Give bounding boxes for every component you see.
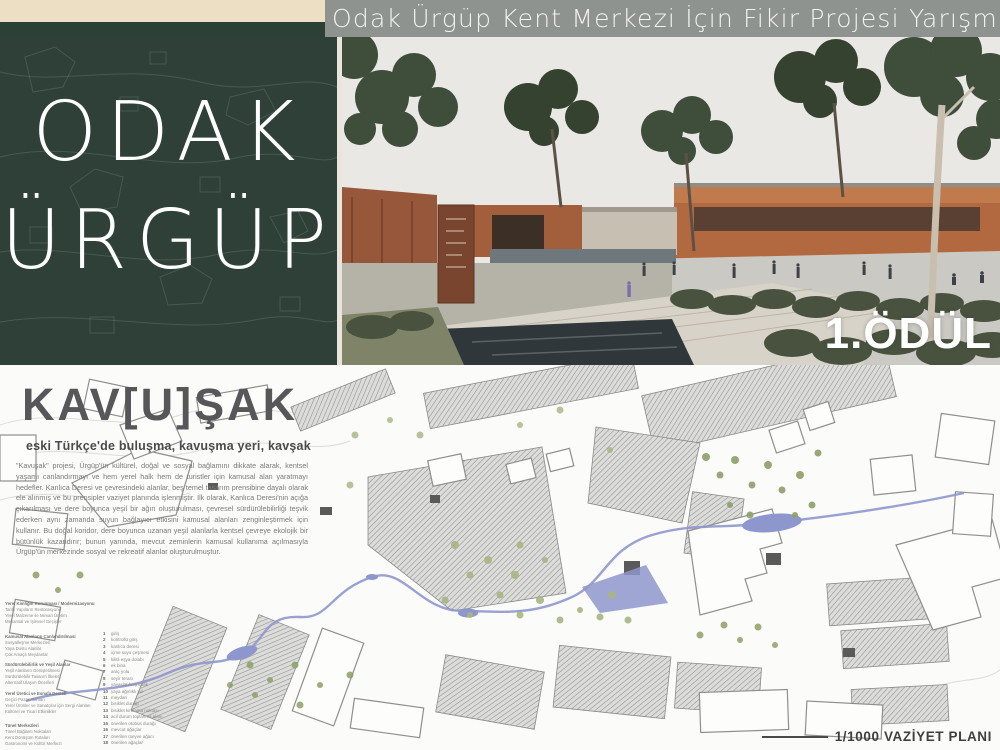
brand-panel-top-strip: [0, 22, 342, 37]
legend-group-identity: Yerel Kimliğin Korunması / Modernizasyon…: [5, 601, 165, 625]
legend-marker: 18: [103, 740, 111, 746]
map-legend: 1giriş 2kontrollü giriş 3kanlıca deresi …: [103, 631, 218, 746]
top-beige-bar: [0, 0, 325, 22]
award-label: 1.ÖDÜL: [825, 309, 992, 359]
project-title: KAV[U]ŞAK: [22, 379, 298, 431]
project-description: "Kavuşak" projesi, Ürgüp'ün kültürel, do…: [16, 461, 308, 558]
map-legend-item: 18önerilen ağaçlar: [103, 740, 218, 746]
competition-header: Odak Ürgüp Kent Merkezi İçin Fikir Proje…: [325, 0, 1000, 37]
hero-rendering: 1.ÖDÜL: [342, 37, 1000, 365]
brand-word-urgup: ÜRGÜP: [0, 187, 337, 295]
brand-word-odak: ODAK: [0, 79, 337, 187]
corten-signage-tower: [438, 205, 474, 303]
scale-leader-line: [762, 736, 828, 738]
plan-scale-label: 1/1000 VAZİYET PLANI: [835, 729, 992, 744]
plan-scale: 1/1000 VAZİYET PLANI: [762, 729, 992, 744]
brand-panel: ODAK ÜRGÜP: [0, 37, 337, 365]
competition-title: Odak Ürgüp Kent Merkezi İçin Fikir Proje…: [325, 4, 1000, 33]
site-plan-section: KAV[U]ŞAK eski Türkçe'de buluşma, kavuşm…: [0, 365, 1000, 750]
brand-wordmark: ODAK ÜRGÜP: [0, 79, 337, 295]
competition-board: Odak Ürgüp Kent Merkezi İçin Fikir Proje…: [0, 0, 1000, 750]
project-subtitle: eski Türkçe'de buluşma, kavuşma yeri, ka…: [26, 439, 311, 453]
